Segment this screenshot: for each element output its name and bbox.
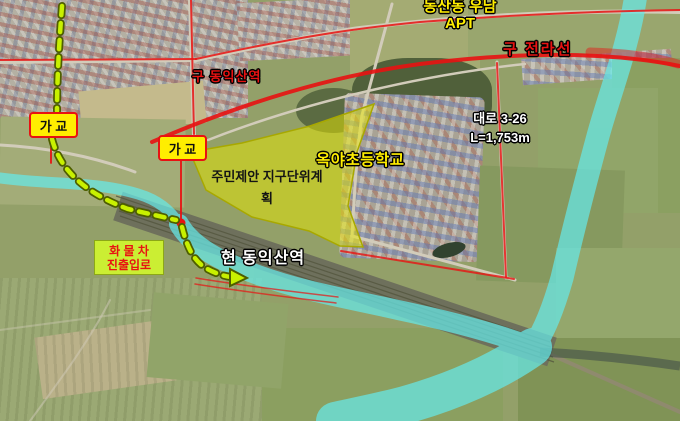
freight-access-line1: 화 물 차 <box>109 244 149 258</box>
label-district-plan-line2: 획 <box>192 192 342 207</box>
freight-access-badge: 화 물 차 진출입로 <box>94 240 164 275</box>
label-old-rail-line: 구 전라선 <box>503 41 572 58</box>
temp-bridge-badge-1: 가 교 <box>29 112 78 138</box>
river-junction <box>515 331 547 363</box>
label-current-station: 현 동익산역 <box>221 250 305 268</box>
label-district-plan: 주민제안 지구단위계 획 <box>192 170 342 207</box>
map-annotations-overlay <box>0 0 680 421</box>
temp-bridge-label: 가 교 <box>169 139 197 158</box>
label-road-name: 대로 3-26 <box>450 112 550 127</box>
red-road-path <box>0 59 196 60</box>
red-road-path <box>497 63 506 277</box>
label-road-length: L=1,753m <box>450 131 550 146</box>
label-district-plan-line1: 주민제안 지구단위계 <box>192 170 342 185</box>
road <box>352 236 515 280</box>
aerial-planning-map: 동산동 우남 APT 구 전라선 구 동익산역 가 교 가 교 주민제안 지구단… <box>0 0 680 421</box>
river-path <box>335 347 533 421</box>
label-school: 옥야초등학교 <box>316 152 405 170</box>
field-path <box>0 310 150 330</box>
field-path <box>30 300 110 421</box>
temp-bridge-label: 가 교 <box>40 116 68 135</box>
label-old-station: 구 동익산역 <box>192 70 261 85</box>
temp-bridge-badge-2: 가 교 <box>158 135 207 161</box>
label-apartment: 동산동 우남 APT <box>408 0 512 33</box>
label-apartment-line2: APT <box>408 15 512 32</box>
label-apartment-line1: 동산동 우남 <box>408 0 512 15</box>
label-road-spec: 대로 3-26 L=1,753m <box>450 112 550 146</box>
freight-access-line2: 진출입로 <box>107 258 151 272</box>
